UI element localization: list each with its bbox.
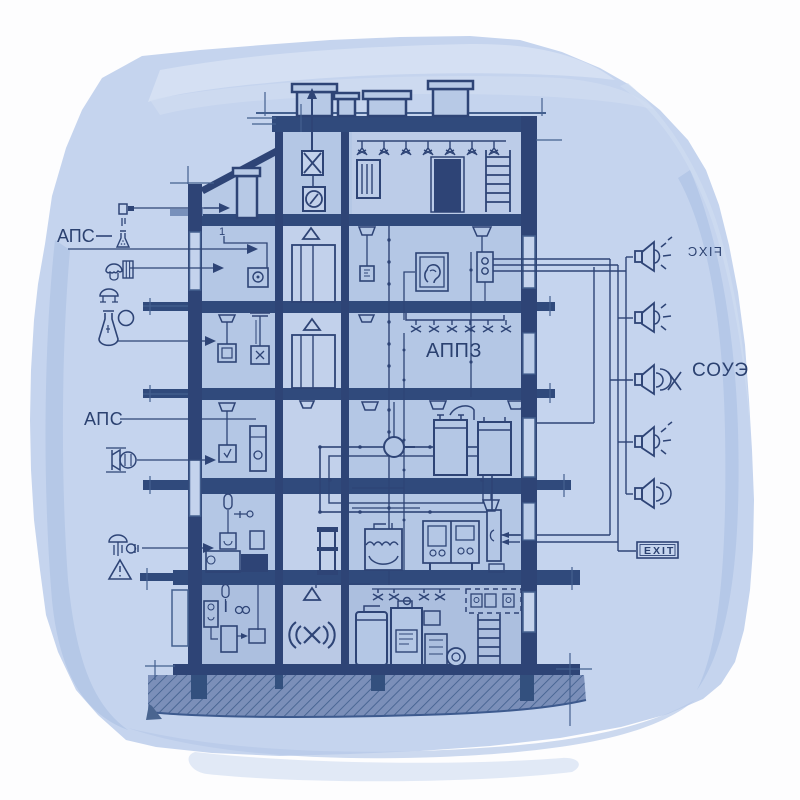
svg-text:АПС: АПС: [57, 226, 95, 246]
svg-text:АПС: АПС: [84, 409, 123, 429]
svg-text:АППЗ: АППЗ: [426, 340, 482, 362]
svg-text:EXIT: EXIT: [644, 545, 675, 557]
svg-text:FIXC: FIXC: [686, 244, 722, 259]
svg-text:СОУЭ: СОУЭ: [692, 360, 749, 381]
